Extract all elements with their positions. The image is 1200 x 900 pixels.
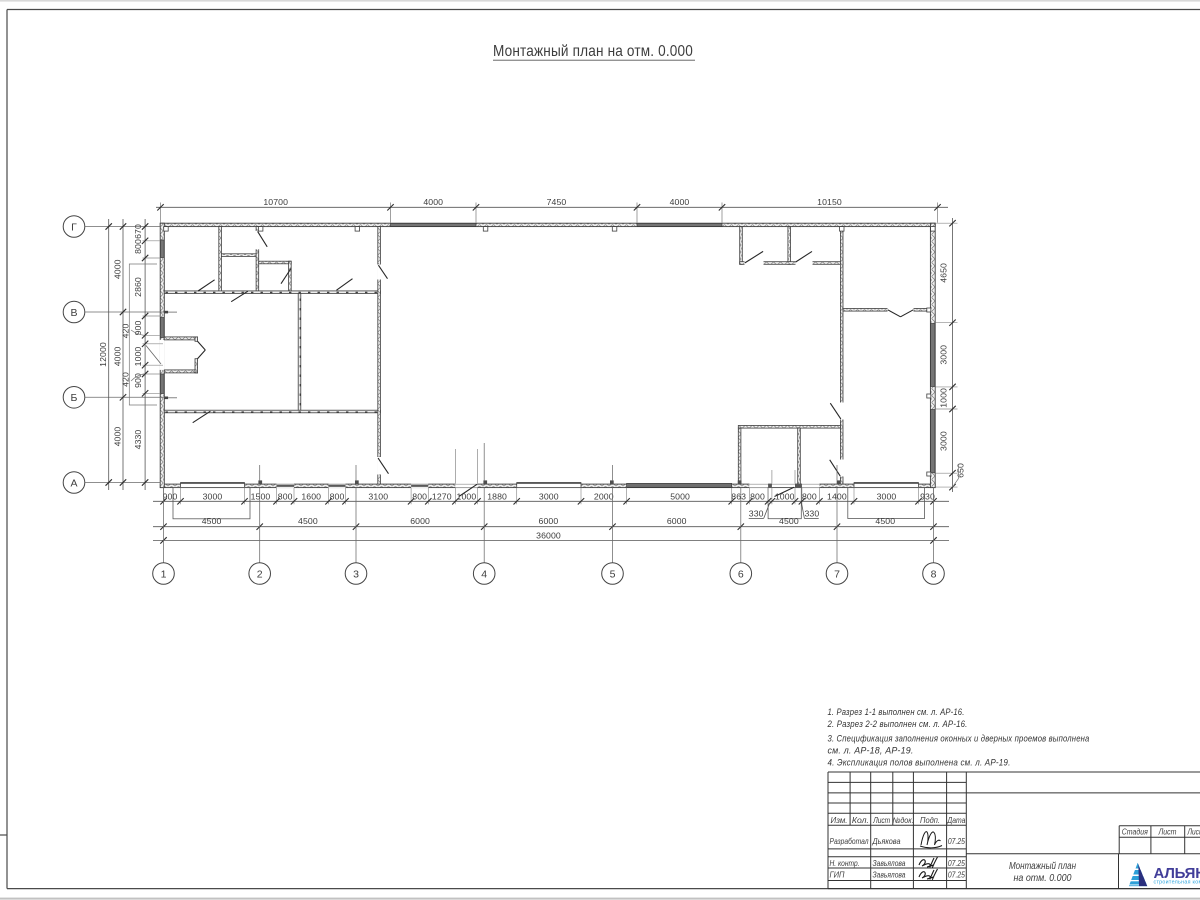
svg-text:800: 800 bbox=[802, 492, 817, 502]
svg-text:4000: 4000 bbox=[423, 197, 443, 207]
svg-text:3000: 3000 bbox=[203, 492, 223, 502]
svg-text:5: 5 bbox=[610, 568, 616, 580]
svg-text:10150: 10150 bbox=[817, 197, 842, 207]
svg-text:07.25: 07.25 bbox=[948, 871, 965, 880]
svg-text:Дьякова: Дьякова bbox=[872, 837, 901, 846]
svg-text:1880: 1880 bbox=[487, 492, 507, 502]
svg-text:Лист: Лист bbox=[872, 816, 890, 825]
svg-text:800: 800 bbox=[133, 239, 143, 254]
svg-text:ГИП: ГИП bbox=[830, 871, 845, 880]
svg-text:800: 800 bbox=[750, 492, 765, 502]
svg-text:670: 670 bbox=[133, 224, 143, 239]
svg-text:Монтажный план: Монтажный план bbox=[1009, 861, 1076, 872]
svg-text:1600: 1600 bbox=[301, 492, 321, 502]
svg-text:330: 330 bbox=[749, 508, 764, 518]
svg-text:1500: 1500 bbox=[251, 492, 271, 502]
svg-text:Лист: Лист bbox=[1158, 828, 1177, 837]
svg-text:строительная компания: строительная компания bbox=[1154, 880, 1200, 886]
svg-text:900: 900 bbox=[163, 492, 178, 502]
svg-text:930: 930 bbox=[920, 492, 935, 502]
svg-text:4: 4 bbox=[481, 568, 487, 580]
svg-text:см. л. АР-18, АР-19.: см. л. АР-18, АР-19. bbox=[828, 746, 914, 756]
svg-text:1000: 1000 bbox=[775, 492, 795, 502]
svg-text:Стадия: Стадия bbox=[1122, 828, 1149, 837]
svg-text:4000: 4000 bbox=[670, 197, 690, 207]
svg-text:4330: 4330 bbox=[133, 430, 143, 450]
svg-text:6: 6 bbox=[738, 568, 744, 580]
svg-text:Подп.: Подп. bbox=[920, 816, 940, 825]
svg-text:В: В bbox=[70, 307, 77, 319]
svg-text:2860: 2860 bbox=[133, 277, 143, 297]
svg-text:Разработал: Разработал bbox=[830, 837, 869, 846]
svg-text:3000: 3000 bbox=[939, 431, 949, 451]
svg-text:07.25: 07.25 bbox=[948, 859, 965, 868]
svg-text:900: 900 bbox=[133, 321, 143, 336]
svg-text:Дата: Дата bbox=[947, 816, 966, 825]
svg-text:1. Разрез 1-1 выполнен см. л.: 1. Разрез 1-1 выполнен см. л. АР-16. bbox=[828, 707, 965, 717]
svg-text:6000: 6000 bbox=[667, 516, 687, 526]
svg-text:650: 650 bbox=[956, 463, 966, 478]
svg-text:1: 1 bbox=[161, 568, 167, 580]
svg-text:№док.: №док. bbox=[893, 816, 914, 825]
svg-text:3000: 3000 bbox=[939, 345, 949, 365]
svg-text:6000: 6000 bbox=[539, 516, 559, 526]
svg-text:2. Разрез 2-2 выполнен см. л.: 2. Разрез 2-2 выполнен см. л. АР-16. bbox=[827, 719, 968, 729]
svg-text:863: 863 bbox=[731, 492, 746, 502]
svg-text:4000: 4000 bbox=[113, 259, 123, 279]
svg-text:Кол.: Кол. bbox=[852, 816, 869, 825]
svg-text:4500: 4500 bbox=[779, 516, 799, 526]
svg-text:5000: 5000 bbox=[670, 492, 690, 502]
svg-text:8: 8 bbox=[931, 568, 937, 580]
svg-text:Завьялова: Завьялова bbox=[873, 859, 906, 868]
svg-text:7: 7 bbox=[834, 568, 840, 580]
svg-text:Б: Б bbox=[71, 392, 78, 404]
svg-text:Листов: Листов bbox=[1187, 828, 1200, 837]
svg-text:Изм.: Изм. bbox=[831, 816, 848, 825]
svg-text:4650: 4650 bbox=[939, 263, 949, 283]
svg-text:4500: 4500 bbox=[202, 516, 222, 526]
svg-text:07.25: 07.25 bbox=[948, 837, 965, 846]
svg-text:4500: 4500 bbox=[298, 516, 318, 526]
svg-text:2000: 2000 bbox=[594, 492, 614, 502]
svg-text:3000: 3000 bbox=[877, 492, 897, 502]
svg-text:3000: 3000 bbox=[539, 492, 559, 502]
svg-text:4000: 4000 bbox=[113, 427, 123, 447]
svg-text:4500: 4500 bbox=[875, 516, 895, 526]
svg-text:330: 330 bbox=[805, 508, 820, 518]
svg-text:7450: 7450 bbox=[547, 197, 567, 207]
svg-text:6000: 6000 bbox=[410, 516, 430, 526]
svg-text:3100: 3100 bbox=[368, 492, 388, 502]
svg-text:800: 800 bbox=[412, 492, 427, 502]
svg-text:10700: 10700 bbox=[263, 197, 288, 207]
svg-text:900: 900 bbox=[133, 373, 143, 388]
svg-text:Г: Г bbox=[71, 221, 77, 233]
svg-text:4000: 4000 bbox=[113, 346, 123, 366]
svg-text:1270: 1270 bbox=[432, 492, 452, 502]
svg-text:Завьялова: Завьялова bbox=[873, 871, 906, 880]
svg-text:1000: 1000 bbox=[939, 388, 949, 408]
svg-text:4. Экспликация полов выполнена: 4. Экспликация полов выполнена см. л. АР… bbox=[828, 757, 1011, 767]
svg-text:А: А bbox=[70, 477, 77, 489]
svg-text:на отм. 0.000: на отм. 0.000 bbox=[1014, 873, 1072, 884]
svg-text:36000: 36000 bbox=[536, 531, 561, 541]
svg-text:1000: 1000 bbox=[457, 492, 477, 502]
svg-text:800: 800 bbox=[330, 492, 345, 502]
svg-text:800: 800 bbox=[278, 492, 293, 502]
svg-text:Монтажный план на отм. 0.000: Монтажный план на отм. 0.000 bbox=[493, 43, 693, 60]
svg-text:2: 2 bbox=[257, 568, 263, 580]
svg-text:1000: 1000 bbox=[133, 347, 143, 367]
svg-text:3: 3 bbox=[353, 568, 359, 580]
svg-text:12000: 12000 bbox=[98, 342, 108, 367]
svg-text:3. Спецификация заполнения око: 3. Спецификация заполнения оконных и две… bbox=[828, 733, 1090, 743]
svg-text:Н. контр.: Н. контр. bbox=[830, 859, 860, 868]
